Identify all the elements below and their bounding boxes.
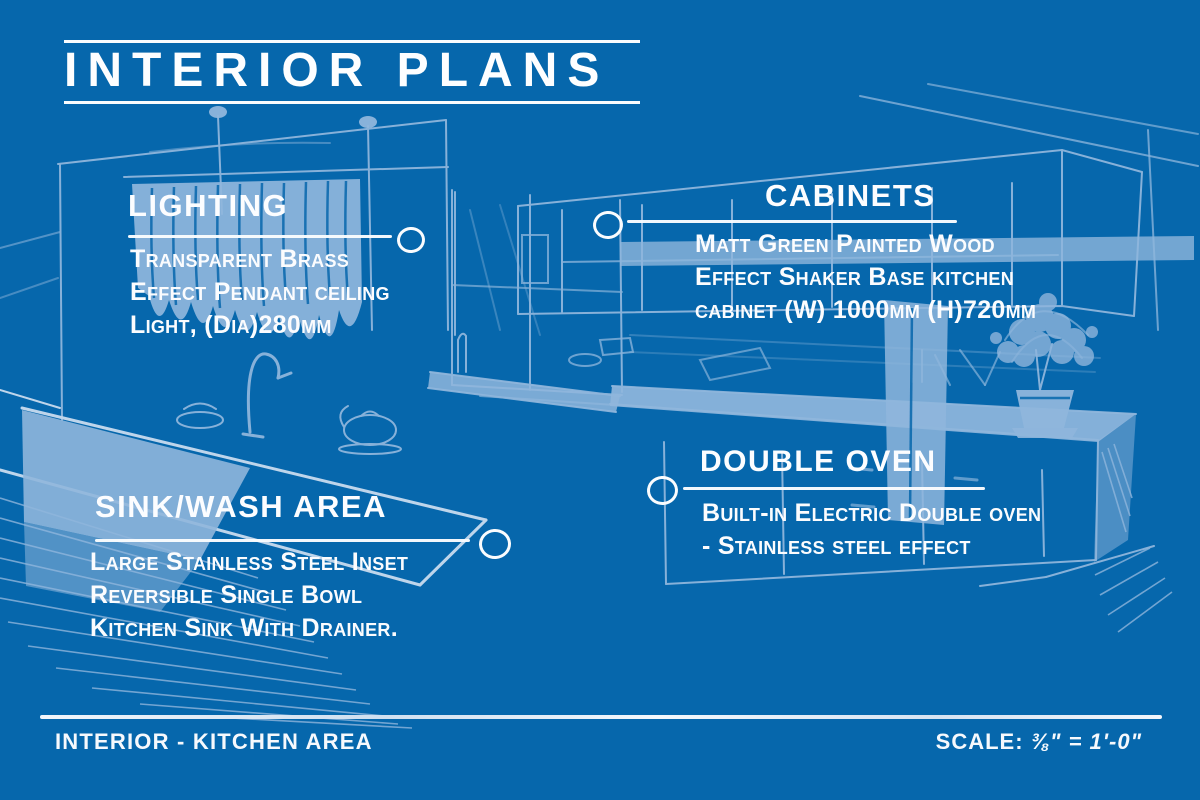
footer-divider-line (40, 715, 1162, 719)
ceiling-line (58, 120, 446, 164)
sink-wash-heading: SINK/WASH AREA (95, 489, 387, 525)
double-oven-body-wrap: Built-in Electric Double oven - Stainles… (702, 497, 1041, 563)
blueprint-sheet: INTERIOR PLANS LIGHTING Transparent Bras… (0, 0, 1200, 800)
double-oven-body: Built-in Electric Double oven - Stainles… (702, 497, 1041, 563)
annotation-cabinets: CABINETS (765, 178, 935, 214)
cabinets-body-wrap: Matt Green Painted Wood Effect Shaker Ba… (695, 228, 1036, 327)
annotation-sink-wash: SINK/WASH AREA (95, 489, 387, 525)
sink-faucet (243, 354, 291, 437)
lighting-leader-line (128, 235, 392, 238)
lighting-body-wrap: Transparent Brass Effect Pendant ceiling… (130, 243, 390, 342)
sink-wash-body-wrap: Large Stainless Steel Inset Reversible S… (90, 546, 408, 645)
scale-label: SCALE: (936, 729, 1024, 754)
title-block: INTERIOR PLANS (64, 40, 640, 104)
sink-wash-leader-line (95, 539, 470, 542)
cabinets-body: Matt Green Painted Wood Effect Shaker Ba… (695, 228, 1036, 327)
footer-drawing-title: INTERIOR - KITCHEN AREA (55, 729, 373, 755)
scale-value: ⅜" = 1'-0" (1031, 729, 1142, 754)
cabinets-heading: CABINETS (765, 178, 935, 214)
page-title: INTERIOR PLANS (64, 46, 640, 96)
lighting-heading: LIGHTING (128, 188, 288, 224)
annotation-double-oven: DOUBLE OVEN (700, 445, 937, 479)
kitchen-sketch-drawing (0, 0, 1200, 800)
sink-wash-body: Large Stainless Steel Inset Reversible S… (90, 546, 408, 645)
annotation-lighting: LIGHTING (128, 188, 288, 224)
cabinets-leader-line (627, 220, 957, 223)
double-oven-leader-line (683, 487, 985, 490)
footer-scale: SCALE: ⅜" = 1'-0" (936, 729, 1142, 755)
double-oven-heading: DOUBLE OVEN (700, 445, 937, 479)
fruit-bowl (177, 404, 223, 429)
lighting-body: Transparent Brass Effect Pendant ceiling… (130, 243, 390, 342)
curtain-rail (124, 167, 448, 177)
kettle (339, 406, 401, 454)
